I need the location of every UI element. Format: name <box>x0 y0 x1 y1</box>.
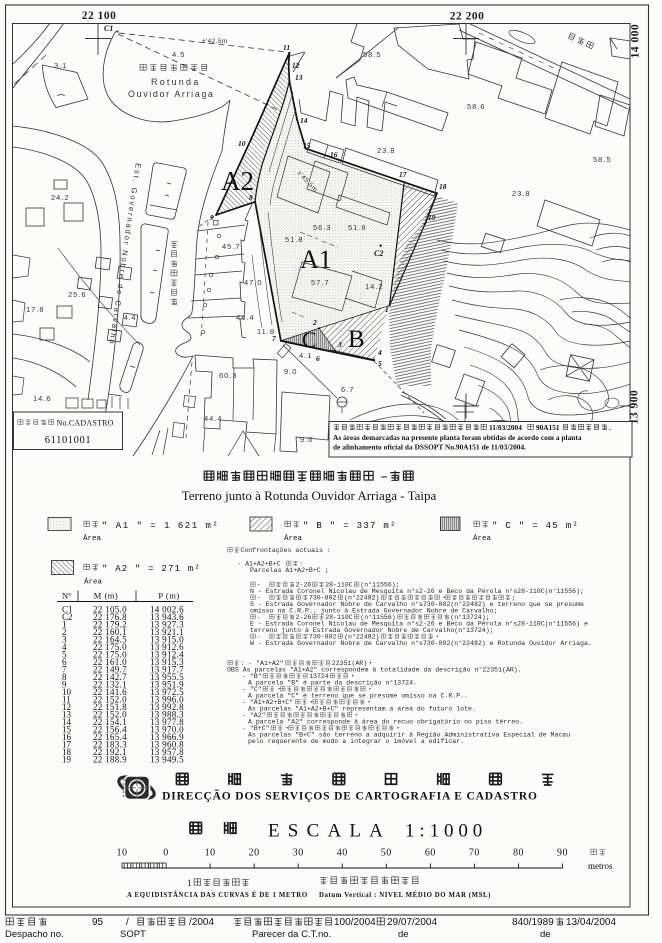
svg-text:10: 10 <box>117 848 128 859</box>
svg-text:A parcela "B" é parte da descr: A parcela "B" é parte da descrição n°137… <box>248 679 417 687</box>
svg-text:3: 3 <box>337 340 342 349</box>
svg-text:4.1: 4.1 <box>299 351 312 360</box>
svg-text:40: 40 <box>337 848 348 859</box>
svg-text:23.8: 23.8 <box>377 146 396 155</box>
svg-text:Datum Vertical : NIVEL MÉDIO D: Datum Vertical : NIVEL MÉDIO DO MAR (MSL… <box>319 891 491 899</box>
svg-text:47.0: 47.0 <box>244 278 263 287</box>
svg-text:22 200: 22 200 <box>450 11 485 23</box>
svg-text:17: 17 <box>399 170 407 179</box>
svg-text:2: 2 <box>312 318 317 327</box>
svg-text:Terreno junto à Rotunda Ouvido: Terreno junto à Rotunda Ouvidor Arriaga … <box>182 488 437 503</box>
svg-text:58.5: 58.5 <box>363 50 382 59</box>
svg-text:22 100: 22 100 <box>82 10 117 22</box>
svg-text:45.7: 45.7 <box>222 242 241 251</box>
svg-text:14.2: 14.2 <box>365 282 384 291</box>
svg-text:Rotunda: Rotunda <box>151 77 200 87</box>
svg-text:44.4: 44.4 <box>204 414 223 423</box>
svg-text:" C " = 45 m²: " C " = 45 m² <box>492 521 579 531</box>
svg-text:58.6: 58.6 <box>467 102 486 111</box>
svg-text:13 949.5: 13 949.5 <box>150 754 184 764</box>
svg-text:58.5: 58.5 <box>593 155 612 164</box>
svg-text:±′42.5m: ±′42.5m <box>202 38 228 45</box>
svg-text:C1: C1 <box>104 24 113 33</box>
svg-text:A1: A1 <box>300 245 332 274</box>
svg-text:7: 7 <box>272 334 276 343</box>
svg-text:9: 9 <box>210 213 214 222</box>
svg-text:Área: Área <box>473 534 492 543</box>
svg-text:P (m): P (m) <box>158 591 179 601</box>
svg-text:Área: Área <box>84 578 103 587</box>
svg-text:70: 70 <box>469 848 480 859</box>
svg-text:C2: C2 <box>374 249 383 258</box>
svg-text:16: 16 <box>330 150 338 159</box>
svg-text:metros: metros <box>588 861 613 871</box>
svg-text:17.8: 17.8 <box>26 305 45 314</box>
svg-text:N°: N° <box>62 591 72 601</box>
svg-text:13/04/2004: 13/04/2004 <box>566 917 616 928</box>
svg-text:/2004: /2004 <box>189 917 214 928</box>
svg-text:Parecer da C.T.no.: Parecer da C.T.no. <box>252 929 331 940</box>
svg-text:50: 50 <box>381 848 392 859</box>
svg-text:-: - <box>237 561 241 568</box>
svg-text:11/03/2004: 11/03/2004 <box>489 423 522 432</box>
svg-text:9.0: 9.0 <box>300 435 313 444</box>
svg-text:Parcelas A1+A2+B+C ;: Parcelas A1+A2+B+C ; <box>250 567 329 574</box>
svg-text:de: de <box>398 929 409 940</box>
svg-text:de alinhamento oficial da DSSO: de alinhamento oficial da DSSOPT No.90A1… <box>333 443 526 452</box>
svg-text:C: C <box>302 327 317 352</box>
svg-text:90A151: 90A151 <box>536 423 560 432</box>
svg-text:23.8: 23.8 <box>512 189 531 198</box>
svg-text:13 900: 13 900 <box>629 390 641 425</box>
svg-text:20: 20 <box>249 848 260 859</box>
svg-text:0: 0 <box>163 848 169 859</box>
svg-text:51.8: 51.8 <box>285 235 304 244</box>
svg-text:57.7: 57.7 <box>311 278 330 287</box>
svg-text:A EQUIDISTÂNCIA DAS CURVAS É D: A EQUIDISTÂNCIA DAS CURVAS É DE 1 METRO <box>127 891 308 899</box>
svg-text:Ouvidor Arriaga: Ouvidor Arriaga <box>128 89 215 99</box>
svg-text:4.4: 4.4 <box>124 315 136 322</box>
svg-text:1: 1 <box>187 878 192 888</box>
svg-text:19: 19 <box>62 754 72 764</box>
svg-text:" B " = 337 m²: " B " = 337 m² <box>303 521 397 531</box>
svg-text:840/1989: 840/1989 <box>512 917 554 928</box>
svg-text:4.5: 4.5 <box>172 50 185 59</box>
svg-text:de: de <box>540 929 551 940</box>
svg-text:25.6: 25.6 <box>68 290 87 299</box>
svg-text:14: 14 <box>300 116 308 125</box>
svg-text:As áreas demarcadas na present: As áreas demarcadas na presente planta f… <box>333 433 582 442</box>
svg-text:14 000: 14 000 <box>630 24 642 59</box>
svg-text:ESCALA: ESCALA <box>268 821 391 842</box>
svg-text:B: B <box>348 326 365 353</box>
svg-text:80: 80 <box>513 848 524 859</box>
svg-text:" A1 " = 1 621 m²: " A1 " = 1 621 m² <box>102 521 219 531</box>
svg-text:15: 15 <box>303 141 311 150</box>
svg-text:Confrontações actuais :: Confrontações actuais : <box>240 547 330 554</box>
svg-text:Despacho no.: Despacho no. <box>5 929 64 940</box>
svg-text:95: 95 <box>92 917 104 928</box>
svg-text:60.3: 60.3 <box>219 371 238 380</box>
svg-text:DIRECÇÃO DOS SERVIÇOS DE CARTO: DIRECÇÃO DOS SERVIÇOS DE CARTOGRAFIA E C… <box>162 789 538 803</box>
svg-text:OBS As parcelas "A1+A2" corr: OBS As parcelas "A1+A2" correspondem à t… <box>227 666 522 674</box>
svg-text:90: 90 <box>557 848 568 859</box>
svg-text:11: 11 <box>283 43 290 52</box>
svg-text:Área: Área <box>284 534 303 543</box>
svg-text:14.6: 14.6 <box>33 394 52 403</box>
svg-text:pelo requerente de modo a inte: pelo requerente de modo a integrar o imó… <box>248 738 464 745</box>
svg-text:No.CADASTRO: No.CADASTRO <box>57 419 114 428</box>
svg-text:6.7: 6.7 <box>341 385 354 394</box>
svg-text:SOPT: SOPT <box>120 929 146 940</box>
svg-text:24.2: 24.2 <box>51 193 70 202</box>
svg-text:100/2004: 100/2004 <box>334 917 376 928</box>
svg-text:60: 60 <box>425 848 436 859</box>
svg-text:56.3: 56.3 <box>313 223 332 232</box>
svg-text:W - Estrada Governador Nobre d: W - Estrada Governador Nobre de Carvalho… <box>250 639 592 647</box>
svg-text:As parcelas "A1+A2+B+C" repres: As parcelas "A1+A2+B+C" representam a ar… <box>248 706 476 713</box>
svg-text:M (m): M (m) <box>94 591 118 601</box>
svg-text:61101001: 61101001 <box>45 435 91 446</box>
svg-text:Área: Área <box>83 534 102 543</box>
svg-text:1:1000: 1:1000 <box>405 821 487 842</box>
svg-text:29/07/2004: 29/07/2004 <box>387 917 437 928</box>
svg-text:4: 4 <box>377 348 382 357</box>
svg-text:A2: A2 <box>221 166 254 196</box>
svg-text:9.0: 9.0 <box>284 367 297 376</box>
svg-text:13: 13 <box>295 73 303 82</box>
svg-text:N - Estrada Coronel Nicolau de: N - Estrada Coronel Nicolau de Mesquita … <box>250 587 584 595</box>
svg-text:/: / <box>126 917 129 928</box>
svg-text:10: 10 <box>205 848 216 859</box>
svg-text:5: 5 <box>378 359 382 368</box>
svg-text:44.4: 44.4 <box>236 313 255 322</box>
svg-text:18: 18 <box>439 182 447 191</box>
svg-text:10: 10 <box>238 139 246 148</box>
svg-text:6: 6 <box>316 354 320 363</box>
svg-text:30: 30 <box>293 848 304 859</box>
svg-text:51.8: 51.8 <box>348 223 367 232</box>
svg-text:1: 1 <box>385 305 389 314</box>
svg-text:" A2 " = 271 m²: " A2 " = 271 m² <box>102 564 201 574</box>
svg-text:22 188.9: 22 188.9 <box>93 754 127 764</box>
svg-text:.: . <box>609 423 611 432</box>
